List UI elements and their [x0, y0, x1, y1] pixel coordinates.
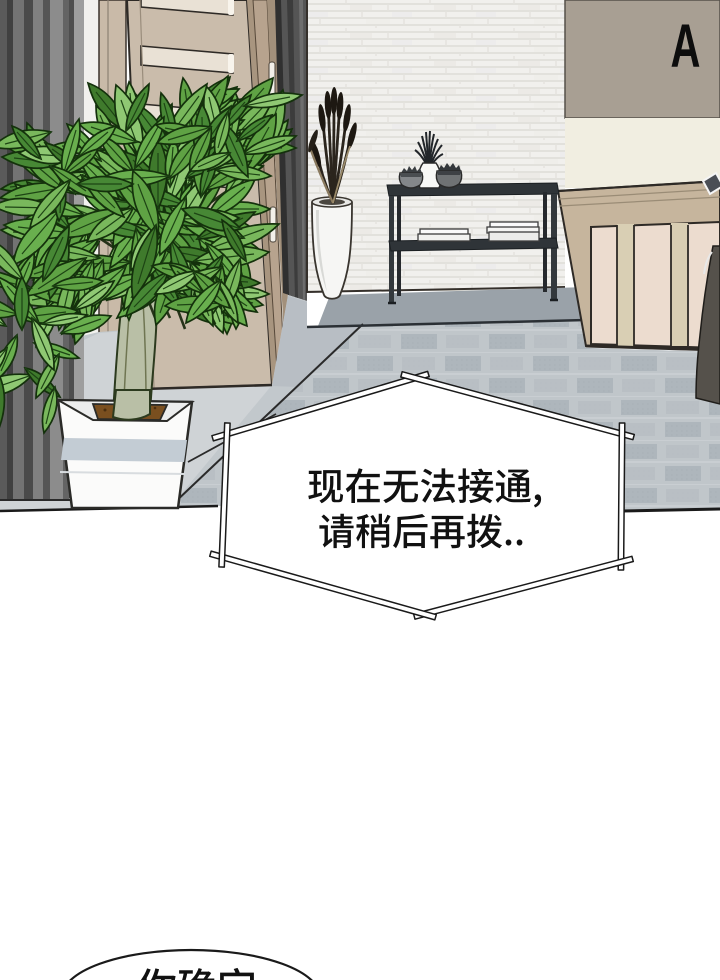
- svg-text:A: A: [671, 13, 701, 81]
